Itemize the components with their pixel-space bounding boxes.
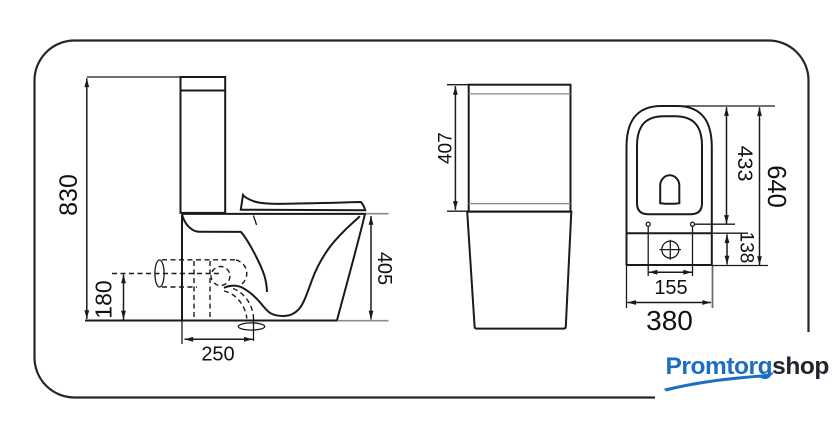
svg-text:155: 155: [654, 277, 687, 299]
svg-text:433: 433: [733, 146, 757, 182]
svg-text:380: 380: [646, 305, 693, 336]
svg-text:180: 180: [91, 280, 117, 318]
svg-text:830: 830: [55, 174, 83, 216]
svg-text:138: 138: [735, 232, 756, 264]
svg-text:250: 250: [201, 344, 234, 366]
svg-text:640: 640: [762, 165, 790, 208]
svg-text:405: 405: [373, 252, 395, 285]
svg-text:407: 407: [436, 132, 457, 164]
